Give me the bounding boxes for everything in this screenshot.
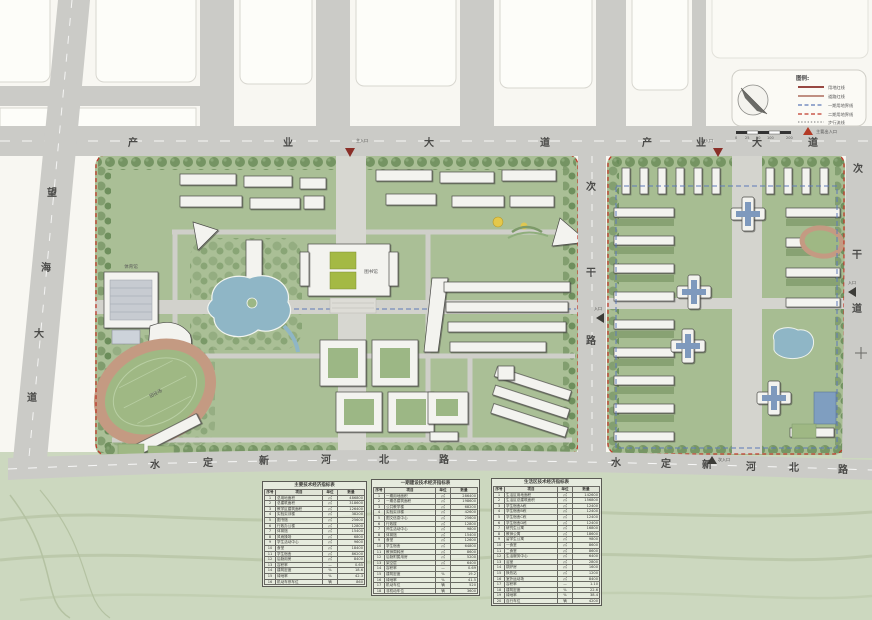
legend-item-label: 用地红线 — [828, 84, 846, 91]
library-label: 图书馆 — [364, 268, 378, 275]
road-east-secondary: 次 干 道 — [842, 152, 872, 458]
court — [118, 444, 144, 455]
courtyard — [344, 399, 374, 425]
building — [180, 174, 236, 185]
service-building — [430, 432, 458, 441]
lab-wing — [444, 282, 570, 292]
courtyard — [396, 399, 426, 425]
lake-island — [247, 298, 257, 308]
court — [792, 424, 816, 438]
building — [376, 170, 432, 181]
entrance-label: 次入口 — [701, 137, 713, 143]
road-label-char: 大 — [34, 327, 44, 340]
dormitory-tower — [498, 366, 514, 380]
table-cell: 860 — [338, 579, 365, 585]
legend-item-label: 道路红线 — [828, 93, 846, 100]
building — [440, 172, 494, 183]
table-cell: 20 — [494, 598, 505, 604]
road-label-char: 产 — [642, 136, 652, 149]
courtyard-block — [336, 392, 382, 432]
pool — [112, 330, 140, 344]
road-label-char: 道 — [27, 391, 37, 404]
courtyard — [380, 348, 410, 378]
table-cell: 4200 — [573, 598, 600, 604]
campus-west-parcel: 图书馆 体育馆 — [83, 153, 588, 462]
tree-row — [610, 157, 842, 167]
legend-item-label: 二期用地界线 — [828, 111, 854, 118]
road-label-char: 水 — [610, 456, 622, 469]
road-label-char: 道 — [852, 302, 862, 315]
legend-item-label: 一期用地界线 — [828, 102, 854, 109]
entrance-label: 入口 — [594, 306, 602, 311]
road-label-char: 次 — [586, 180, 596, 193]
road-industry-avenue: 产 业 大 道 产 业 大 道 — [0, 126, 872, 156]
road-label-char: 干 — [852, 249, 862, 261]
lab-wing — [448, 322, 566, 332]
building — [180, 196, 242, 207]
road-label-char: 业 — [283, 136, 293, 149]
indicator-table: 序号项目单位数量1生活区用地面积㎡1426002生活区总建筑面积㎡1568003… — [493, 486, 600, 604]
indicator-table: 序号项目单位数量1总用地面积㎡4868002总建筑面积㎡3186003教学区建筑… — [264, 489, 365, 585]
entrance-label: 主入口 — [356, 137, 368, 143]
table-cell: 非机动车位 — [385, 588, 436, 594]
table-row: 20自行车位辆4200 — [494, 598, 600, 604]
entrance-label: 入口 — [848, 280, 856, 285]
north-compass-icon — [738, 85, 768, 115]
road-label-char: 定 — [661, 457, 671, 470]
table-cell: 辆 — [323, 579, 338, 585]
road-label-char: 北 — [789, 461, 799, 474]
gym-roof — [110, 280, 152, 320]
courtyard-buildings — [320, 340, 434, 432]
roof-courtyard — [330, 272, 356, 289]
road-label-char: 路 — [439, 453, 450, 466]
building — [304, 196, 324, 209]
road-label-char: 道 — [540, 136, 550, 149]
dormitory-rows-west — [614, 208, 674, 441]
road-label-char: 定 — [203, 456, 213, 469]
road-label-char: 河 — [746, 461, 756, 473]
road-label-char: 道 — [808, 136, 818, 149]
road-label-char: 大 — [424, 136, 434, 149]
plaza-steps — [330, 298, 376, 313]
table-cell: 3600 — [451, 588, 478, 594]
gym-label: 体育馆 — [124, 263, 138, 270]
table-cell: 18 — [374, 588, 385, 594]
road-label-char: 干 — [586, 267, 596, 279]
entrance-label: 次入口 — [718, 456, 730, 462]
road-label-char: 路 — [838, 463, 849, 476]
courtyard-block — [388, 392, 434, 432]
road-label-char: 河 — [321, 454, 331, 466]
building — [250, 198, 300, 209]
building — [452, 196, 504, 207]
building — [300, 178, 326, 189]
building — [386, 194, 436, 205]
basketball-courts — [814, 392, 836, 424]
indicator-table: 序号项目单位数量1一期用地面积㎡2864002一期总建筑面积㎡1986003公共… — [373, 487, 478, 594]
scale-number: 50 — [756, 136, 760, 140]
building — [510, 196, 554, 207]
road-label-char: 水 — [149, 458, 161, 471]
entry-axis-plaza — [336, 156, 366, 246]
table-cell: 辆 — [436, 588, 451, 594]
courtyard-block — [320, 340, 366, 386]
scale-number: 25 — [745, 136, 749, 140]
campus-east-parcel — [607, 153, 845, 455]
scale-number: 0 — [735, 136, 737, 140]
indicator-table-living: 生活区技术经济指标表序号项目单位数量1生活区用地面积㎡1426002生活区总建筑… — [491, 478, 602, 606]
road-label-char: 海 — [41, 261, 51, 274]
table-row: 16机动车停车位辆860 — [265, 579, 365, 585]
courtyard-block — [372, 340, 418, 386]
courtyard — [328, 348, 358, 378]
road-label-char: 望 — [47, 186, 57, 199]
roof-courtyard — [330, 252, 356, 269]
road-label-char: 产 — [128, 136, 138, 149]
scale-number: 200 — [786, 136, 793, 140]
lab-wing — [450, 342, 546, 352]
master-plan-canvas: 图书馆 体育馆 — [0, 0, 872, 620]
road-label-char: 路 — [586, 334, 597, 347]
road-label-char: 次 — [853, 162, 863, 175]
indicator-table-phase1: 一期建设技术经济指标表序号项目单位数量1一期用地面积㎡2864002一期总建筑面… — [371, 479, 480, 596]
table-cell: 自行车位 — [505, 598, 558, 604]
lab-wing — [446, 302, 568, 312]
table-cell: 辆 — [558, 598, 573, 604]
east-pond — [773, 328, 813, 359]
legend-item-label: 步行流线 — [828, 119, 846, 126]
courtyard — [436, 399, 458, 416]
table-cell: 16 — [265, 579, 276, 585]
legend-item-label: 主要出入口 — [816, 128, 837, 135]
indicator-table-main: 主要技术经济指标表序号项目单位数量1总用地面积㎡4868002总建筑面积㎡318… — [262, 481, 367, 587]
road-label-char: 北 — [379, 453, 389, 466]
table-row: 18非机动车位辆3600 — [374, 588, 478, 594]
road-label-char: 新 — [259, 454, 269, 467]
building — [502, 170, 556, 181]
scale-number: 100 — [767, 136, 774, 140]
building — [244, 176, 292, 187]
table-cell: 机动车停车位 — [276, 579, 323, 585]
legend-title: 图例: — [796, 74, 809, 82]
